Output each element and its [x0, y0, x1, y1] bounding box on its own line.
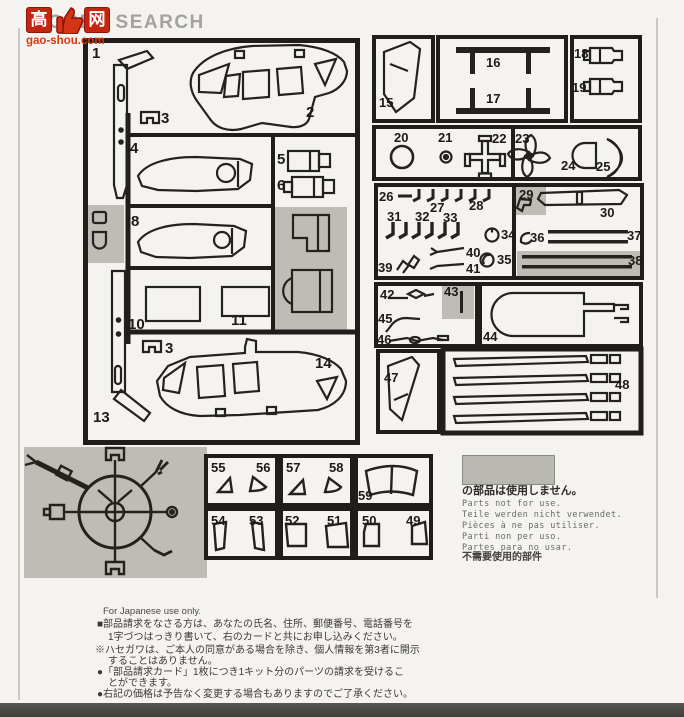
- part-number-34: 34: [501, 228, 515, 241]
- part-57-drawing: [290, 480, 305, 494]
- unused-legend-japanese: の部品は使用しません。: [462, 486, 583, 497]
- part-number-32: 32: [415, 210, 429, 223]
- part-number-39: 39: [378, 261, 392, 274]
- footer-line-2: 1字づつはっきり書いて、右のカードと共にお申し込みください。: [108, 633, 403, 643]
- footer-line-6: とができます。: [108, 679, 177, 689]
- part-number-54: 54: [211, 514, 225, 527]
- part-3-clip-bottom: [143, 341, 161, 352]
- part-44-drawing: [491, 293, 628, 336]
- part-number-10: 10: [128, 317, 145, 332]
- part-number-51: 51: [327, 514, 341, 527]
- part-number-31: 31: [387, 210, 401, 223]
- part-number-47: 47: [384, 371, 398, 384]
- unused-legend-italian: Parti non per uso.: [462, 533, 561, 542]
- part-number-43: 43: [444, 285, 458, 298]
- part-number-52: 52: [285, 514, 299, 527]
- unused-parts-swatch: [462, 455, 555, 485]
- gaoshou-thumb-icon: [51, 4, 85, 34]
- part-number-21: 21: [438, 131, 452, 144]
- part-34-drawing: [486, 229, 499, 242]
- part-18-drawing: [584, 48, 622, 63]
- part-39-drawing: [397, 256, 419, 273]
- part-number-49: 49: [406, 514, 420, 527]
- part-number-4: 4: [130, 141, 138, 156]
- part-6-drawing: [284, 177, 334, 197]
- gaoshou-logo-kanji-right: 网: [84, 7, 110, 33]
- part-35-drawing: [481, 254, 494, 267]
- part-number-3-top: 3: [161, 111, 169, 126]
- part-number-33: 33: [443, 211, 457, 224]
- part-13-drawing: [112, 271, 150, 421]
- part-number-56: 56: [256, 461, 270, 474]
- part-number-46: 46: [377, 333, 391, 346]
- part-41-drawing: [430, 264, 464, 269]
- part-number-30: 30: [600, 206, 614, 219]
- part-number-25: 25: [596, 160, 610, 173]
- part-8-drawing: [138, 224, 246, 258]
- part-number-17: 17: [486, 92, 500, 105]
- part-number-20: 20: [394, 131, 408, 144]
- part-number-55: 55: [211, 461, 225, 474]
- part-30-drawing: [538, 190, 627, 205]
- part-37-drawing: [548, 230, 628, 244]
- part-number-8: 8: [131, 214, 139, 229]
- footer-line-3: ※ハセガワは、ご本人の同意がある場合を除き、個人情報を第3者に開示: [95, 646, 420, 656]
- part-number-37: 37: [627, 229, 641, 242]
- part-number-44: 44: [483, 330, 497, 343]
- footer-line-4: することはありません。: [108, 657, 218, 667]
- part-number-35: 35: [497, 253, 511, 266]
- part-14-drawing: [157, 339, 346, 416]
- part-number-59: 59: [358, 489, 372, 502]
- page-bottom-bar: [0, 703, 684, 717]
- part-56-drawing: [250, 477, 266, 491]
- part-number-3-bottom: 3: [165, 341, 173, 356]
- part-16-17-skids-drawing: [456, 47, 550, 114]
- part-55-drawing: [218, 478, 232, 492]
- part-20-drawing: [391, 146, 413, 168]
- part-number-42: 42: [380, 288, 394, 301]
- unused-legend-french: Pièces à ne pas utiliser.: [462, 522, 600, 531]
- part-number-5: 5: [277, 152, 285, 167]
- part-number-29: 29: [519, 188, 533, 201]
- part-number-14: 14: [315, 356, 332, 371]
- part-number-22: 22: [492, 132, 506, 145]
- part-number-41: 41: [466, 262, 480, 275]
- part-number-36: 36: [530, 231, 544, 244]
- footer-line-5: ●「部品請求カード」1枚につき1キット分のパーツの請求を受けるこ: [97, 668, 404, 678]
- part-1-drawing: [114, 51, 153, 198]
- part-4-drawing: [138, 157, 252, 191]
- part-19-drawing: [584, 79, 622, 94]
- part-number-2: 2: [306, 105, 314, 120]
- part-number-28: 28: [469, 199, 483, 212]
- part-number-58: 58: [329, 461, 343, 474]
- part-number-11: 11: [231, 313, 247, 328]
- part-number-26: 26: [379, 190, 393, 203]
- part-46-drawing: [389, 336, 448, 343]
- part-21-drawing: [441, 152, 452, 163]
- part-number-45: 45: [378, 312, 392, 325]
- gaoshou-logo-kanji-left: 高: [26, 7, 52, 33]
- part-number-6: 6: [277, 178, 285, 193]
- part-number-18: 18: [574, 47, 588, 60]
- part-number-15: 15: [379, 96, 393, 109]
- part-number-53: 53: [249, 514, 263, 527]
- part-40-drawing: [430, 248, 464, 255]
- unused-legend-english: Parts not for use.: [462, 500, 561, 509]
- part-number-24: 24: [561, 159, 575, 172]
- part-number-16: 16: [486, 56, 500, 69]
- part-48-blades-drawing: [454, 355, 620, 423]
- unused-legend-chinese: 不需要使用的部件: [462, 553, 542, 563]
- footer-line-1: ■部品請求をなさる方は、あなたの氏名、住所、郵便番号、電話番号を: [97, 620, 413, 630]
- part-number-1: 1: [92, 46, 100, 61]
- part-number-50: 50: [362, 514, 376, 527]
- part-58-drawing: [325, 478, 341, 492]
- part-number-19: 19: [572, 81, 586, 94]
- part-number-13: 13: [93, 410, 110, 425]
- part-2-drawing: [191, 45, 347, 130]
- part-3-clip-top: [141, 112, 159, 123]
- part-47-drawing: [388, 357, 419, 420]
- parts-diagram-page: HOBBY SEARCH 高 网 gao-shou.com 1 2 3 4 5 …: [0, 0, 684, 717]
- part-number-57: 57: [286, 461, 300, 474]
- footer-line-7: ●右記の価格は予告なく変更する場合もありますのでご了承ください。: [97, 690, 413, 700]
- part-number-48: 48: [615, 378, 629, 391]
- unused-legend-german: Teile werden nicht verwendet.: [462, 511, 622, 520]
- part-number-40: 40: [466, 246, 480, 259]
- part-43-drawing: [460, 291, 463, 313]
- part-5-drawing: [288, 151, 330, 171]
- part-number-38: 38: [628, 254, 642, 267]
- part-number-23: 23: [515, 132, 529, 145]
- part-24-drawing: [573, 143, 597, 168]
- part-59-drawing: [366, 466, 417, 495]
- part-42-drawing: [388, 290, 434, 298]
- footer-heading: For Japanese use only.: [103, 607, 201, 617]
- part-10-drawing: [146, 287, 200, 321]
